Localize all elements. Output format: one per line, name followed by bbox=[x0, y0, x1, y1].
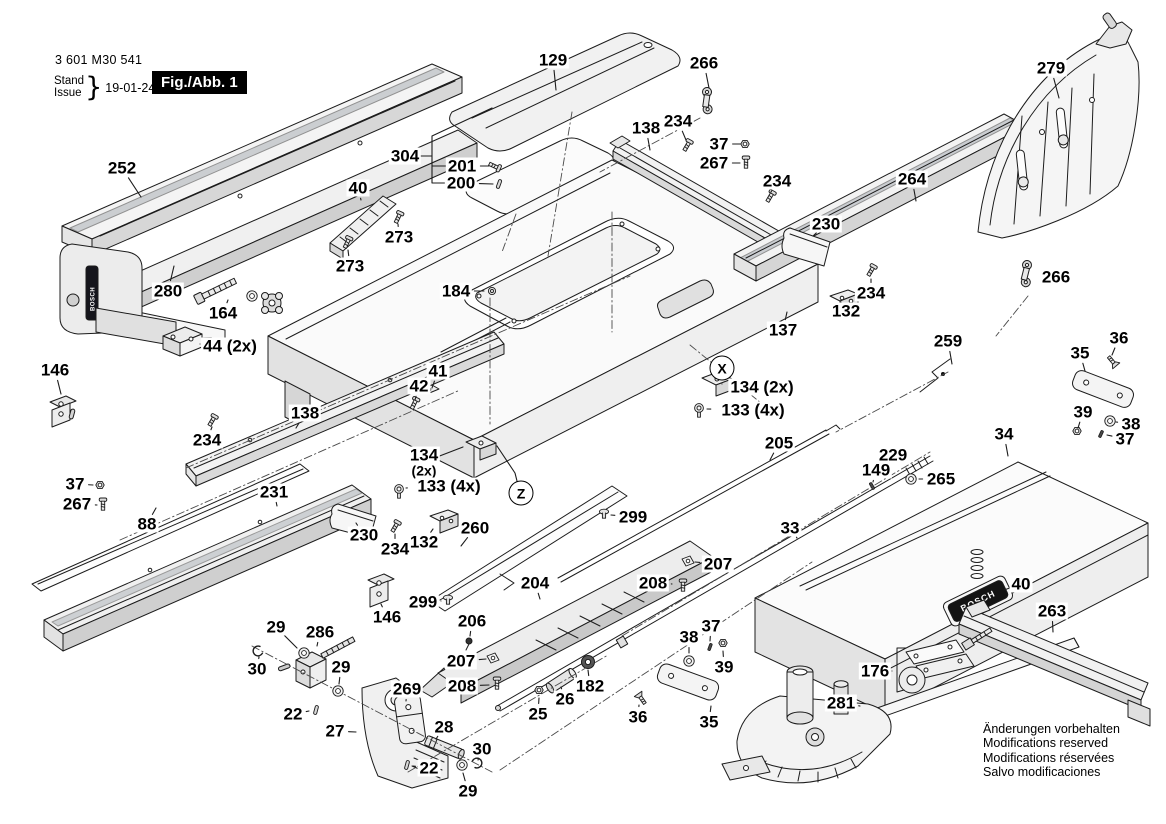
part-callout-299: 299 bbox=[617, 509, 649, 526]
part-callout-30: 30 bbox=[471, 741, 494, 758]
part-callout-29: 29 bbox=[330, 659, 353, 676]
part-callout-138: 138 bbox=[630, 120, 662, 137]
part-callout-164: 164 bbox=[207, 305, 239, 322]
part-callout-208: 208 bbox=[637, 575, 669, 592]
spring-wire-259-drawing bbox=[920, 359, 950, 392]
part-callout-132: 132 bbox=[408, 534, 440, 551]
part-callout-184: 184 bbox=[440, 283, 472, 300]
note-de: Änderungen vorbehalten bbox=[983, 722, 1120, 736]
part-callout-234: 234 bbox=[662, 113, 694, 130]
part-callout-qty: (2x) bbox=[410, 464, 438, 478]
part-callout-37: 37 bbox=[64, 476, 87, 493]
part-callout-234: 234 bbox=[761, 173, 793, 190]
ref-marker-X: X bbox=[710, 356, 735, 381]
part-callout-264: 264 bbox=[896, 171, 928, 188]
pin-206-drawing bbox=[466, 638, 472, 650]
clip-132-bottom-drawing bbox=[430, 510, 458, 533]
part-callout-230: 230 bbox=[810, 216, 842, 233]
part-callout-260: 260 bbox=[459, 520, 491, 537]
exploded-diagram-artwork: BOSCH bbox=[0, 0, 1166, 824]
part-callout-201: 201 bbox=[446, 158, 478, 175]
part-callout-22: 22 bbox=[418, 760, 441, 777]
part-callout-204: 204 bbox=[519, 575, 551, 592]
part-callout-29: 29 bbox=[265, 619, 288, 636]
part-callout-207: 207 bbox=[702, 556, 734, 573]
part-callout-40: 40 bbox=[347, 180, 370, 197]
part-callout-129: 129 bbox=[537, 52, 569, 69]
knob-164-drawing bbox=[262, 293, 283, 314]
part-callout-35: 35 bbox=[1069, 345, 1092, 362]
part-callout-267: 267 bbox=[698, 155, 730, 172]
part-callout-286: 286 bbox=[304, 624, 336, 641]
guide-rail-264-drawing bbox=[734, 114, 1026, 281]
part-callout-25: 25 bbox=[527, 706, 550, 723]
part-callout-36: 36 bbox=[627, 709, 650, 726]
issue-date-block: Stand Issue } 19-01-24 bbox=[54, 72, 155, 103]
part-callout-40: 40 bbox=[1010, 576, 1033, 593]
part-callout-182: 182 bbox=[574, 678, 606, 695]
part-callout-132: 132 bbox=[830, 303, 862, 320]
part-callout-273: 273 bbox=[383, 229, 415, 246]
type-number: 3 601 M30 541 bbox=[55, 53, 142, 67]
part-callout-27: 27 bbox=[324, 723, 347, 740]
stand-label: Stand bbox=[54, 76, 84, 88]
part-callout-304: 304 bbox=[389, 148, 421, 165]
plate-35-bottom-drawing bbox=[655, 662, 720, 702]
part-callout-29: 29 bbox=[457, 783, 480, 800]
latch-146-right-drawing bbox=[368, 574, 394, 607]
part-callout-266: 266 bbox=[688, 55, 720, 72]
part-callout-208: 208 bbox=[446, 678, 478, 695]
part-callout-299: 299 bbox=[407, 594, 439, 611]
part-callout-138: 138 bbox=[289, 405, 321, 422]
part-callout-30: 30 bbox=[246, 661, 269, 678]
part-callout-205: 205 bbox=[763, 435, 795, 452]
part-callout-42: 42 bbox=[408, 378, 431, 395]
part-callout-230: 230 bbox=[348, 527, 380, 544]
part-callout-231: 231 bbox=[258, 484, 290, 501]
part-callout-281: 281 bbox=[825, 695, 857, 712]
part-callout-265: 265 bbox=[925, 471, 957, 488]
clip-266-top-drawing bbox=[700, 87, 716, 114]
part-callout-207: 207 bbox=[445, 653, 477, 670]
modifications-note: Änderungen vorbehalten Modifications res… bbox=[983, 722, 1120, 780]
clip-266-right-drawing bbox=[1017, 260, 1035, 288]
part-callout-206: 206 bbox=[456, 613, 488, 630]
part-callout-252: 252 bbox=[106, 160, 138, 177]
part-callout-33: 33 bbox=[779, 520, 802, 537]
part-callout-280: 280 bbox=[152, 283, 184, 300]
note-fr: Modifications réservées bbox=[983, 751, 1120, 765]
part-callout-134-2x-: 134 (2x) bbox=[728, 379, 795, 396]
part-callout-22: 22 bbox=[282, 706, 305, 723]
part-callout-234: 234 bbox=[191, 432, 223, 449]
latch-146-left-drawing bbox=[50, 396, 76, 427]
part-callout-37: 37 bbox=[1114, 431, 1137, 448]
part-callout-38: 38 bbox=[678, 629, 701, 646]
part-callout-28: 28 bbox=[433, 719, 456, 736]
part-callout-149: 149 bbox=[860, 462, 892, 479]
part-callout-133-4x-: 133 (4x) bbox=[415, 478, 482, 495]
part-callout-263: 263 bbox=[1036, 603, 1068, 620]
part-callout-137: 137 bbox=[767, 322, 799, 339]
part-callout-279: 279 bbox=[1035, 60, 1067, 77]
part-callout-273: 273 bbox=[334, 258, 366, 275]
part-callout-35: 35 bbox=[698, 714, 721, 731]
part-callout-266: 266 bbox=[1040, 269, 1072, 286]
part-callout-134: 134(2x) bbox=[408, 447, 440, 478]
issue-label: Issue bbox=[54, 88, 84, 100]
part-callout-34: 34 bbox=[993, 426, 1016, 443]
part-callout-234: 234 bbox=[379, 541, 411, 558]
part-callout-36: 36 bbox=[1108, 330, 1131, 347]
figure-label: Fig./Abb. 1 bbox=[152, 71, 247, 94]
part-callout-88: 88 bbox=[136, 516, 159, 533]
part-callout-269: 269 bbox=[391, 681, 423, 698]
note-en: Modifications reserved bbox=[983, 736, 1120, 750]
part-callout-200: 200 bbox=[445, 175, 477, 192]
part-callout-39: 39 bbox=[1072, 404, 1095, 421]
part-callout-259: 259 bbox=[932, 333, 964, 350]
note-es: Salvo modificaciones bbox=[983, 765, 1120, 779]
issue-date: 19-01-24 bbox=[105, 81, 155, 95]
part-callout-176: 176 bbox=[859, 663, 891, 680]
brace-glyph: } bbox=[85, 72, 102, 103]
part-callout-37: 37 bbox=[708, 136, 731, 153]
part-callout-133-4x-: 133 (4x) bbox=[719, 402, 786, 419]
parts-diagram-page: BOSCH bbox=[0, 0, 1166, 824]
bosch-logo-vertical: BOSCH bbox=[91, 287, 97, 311]
part-callout-37: 37 bbox=[700, 618, 723, 635]
part-callout-146: 146 bbox=[39, 362, 71, 379]
part-callout-44-2x-: 44 (2x) bbox=[201, 338, 259, 355]
ref-marker-Z: Z bbox=[509, 481, 534, 506]
part-callout-267: 267 bbox=[61, 496, 93, 513]
part-callout-234: 234 bbox=[855, 285, 887, 302]
part-callout-39: 39 bbox=[713, 659, 736, 676]
part-callout-146: 146 bbox=[371, 609, 403, 626]
